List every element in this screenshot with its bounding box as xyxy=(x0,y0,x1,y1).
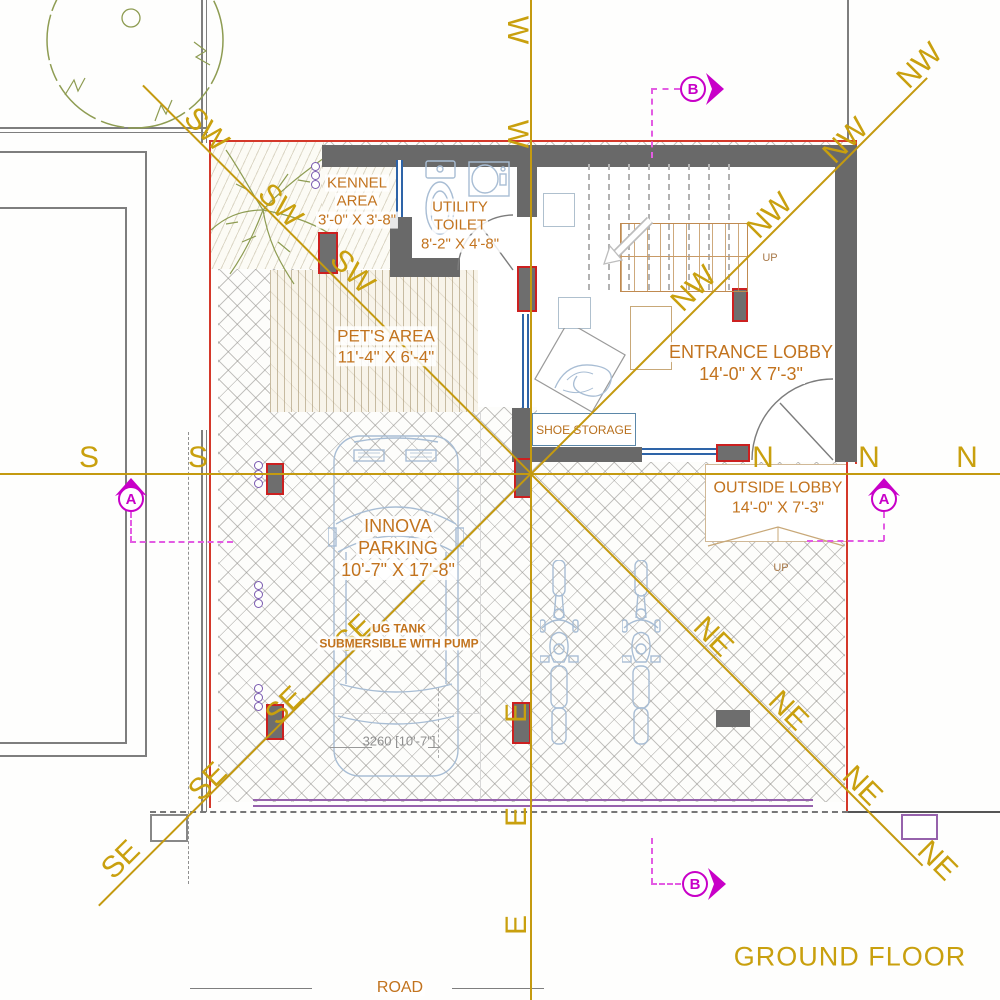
compass-axis-horizontal xyxy=(0,473,1000,475)
section-marker-b-letter: B xyxy=(690,876,701,893)
lobby-up-label: UP xyxy=(773,562,788,574)
innova-parking-name: INNOVA xyxy=(362,516,434,536)
stair-direction-arrow xyxy=(592,212,656,274)
neighbor-building-line xyxy=(0,742,126,744)
service-point xyxy=(254,693,263,702)
section-marker-a-letter: A xyxy=(879,491,890,508)
floor-plan-canvas: UP SHOE STORAGE UP xyxy=(0,0,1000,1000)
section-marker-b-letter: B xyxy=(688,81,699,98)
kennel-area-name2: AREA xyxy=(335,193,380,210)
road-label-line xyxy=(190,988,312,989)
innova-parking-label: INNOVA PARKING 10'-7" X 17'-8" xyxy=(339,516,457,582)
decor-mat xyxy=(525,328,637,416)
motorcycle xyxy=(622,560,662,746)
stair-tread-line xyxy=(588,164,590,290)
stair-up-label: UP xyxy=(762,252,777,264)
section-line-dashed xyxy=(651,883,681,885)
innova-parking-name2: PARKING xyxy=(356,538,440,558)
ug-tank-label: UG TANK SUBMERSIBLE WITH PUMP xyxy=(317,621,480,650)
compass-label-northeast: NE xyxy=(910,834,964,888)
pets-area-dims: 11'-4" X 6'-4" xyxy=(336,347,437,366)
pets-area-label: PET'S AREA 11'-4" X 6'-4" xyxy=(335,326,437,367)
sink-fixture xyxy=(468,161,510,197)
compass-label-east: E xyxy=(500,807,534,827)
compass-axis-vertical xyxy=(530,0,532,1000)
service-point xyxy=(254,599,263,608)
section-line-dashed xyxy=(130,541,233,543)
neighbor-building-line xyxy=(125,207,127,744)
utility-toilet-label: UTILITY TOILET 8'-2" X 4'-8" xyxy=(419,199,501,254)
ug-tank-name: UG TANK xyxy=(370,621,428,635)
compass-label-south: S xyxy=(79,441,99,475)
neighbor-building-line xyxy=(0,755,146,757)
column xyxy=(266,463,284,495)
window xyxy=(642,448,718,455)
motorcycle xyxy=(540,560,580,746)
road-box xyxy=(150,814,188,842)
entrance-lobby-name: ENTRANCE LOBBY xyxy=(667,342,835,362)
compass-label-east: E xyxy=(500,703,534,723)
service-point xyxy=(254,684,263,693)
road-edge-line xyxy=(253,799,813,801)
kennel-area-label: KENNEL AREA 3'-0" X 3'-8" xyxy=(316,175,398,230)
service-point xyxy=(254,590,263,599)
compass-label-south: S xyxy=(188,441,208,475)
section-marker-b: B xyxy=(682,871,708,897)
floor-title: GROUND FLOOR xyxy=(734,942,967,973)
outside-lobby-label: OUTSIDE LOBBY 14'-0" X 7'-3" xyxy=(712,478,845,517)
section-marker-a-letter: A xyxy=(126,491,137,508)
service-point xyxy=(254,479,263,488)
column xyxy=(716,444,750,462)
furniture-square xyxy=(543,193,575,227)
road-label: ROAD xyxy=(375,978,425,998)
section-line-dashed xyxy=(883,512,885,541)
neighbor-building-line xyxy=(0,207,126,209)
utility-toilet-dims: 8'-2" X 4'-8" xyxy=(419,235,501,252)
section-line-dashed xyxy=(651,838,653,884)
compass-label-west: W xyxy=(500,120,534,148)
column xyxy=(732,288,748,322)
outside-lobby-name: OUTSIDE LOBBY xyxy=(712,479,845,496)
service-point xyxy=(311,162,320,171)
kennel-area-name: KENNEL xyxy=(325,175,389,192)
ug-tank-name2: SUBMERSIBLE WITH PUMP xyxy=(317,636,480,650)
compass-label-north: N xyxy=(752,441,774,475)
road-center-dashed xyxy=(150,811,848,813)
shoe-storage-label: SHOE STORAGE xyxy=(536,423,632,437)
innova-parking-dims: 10'-7" X 17'-8" xyxy=(339,560,457,580)
utility-toilet-name: UTILITY xyxy=(430,199,490,216)
compass-label-north: N xyxy=(956,441,978,475)
pets-area-name: PET'S AREA xyxy=(335,326,437,345)
compass-label-northwest: NW xyxy=(890,36,949,95)
section-line-dashed xyxy=(651,88,653,158)
wall-segment-toilet-bottom xyxy=(390,258,460,277)
service-point xyxy=(254,461,263,470)
neighbor-building-line xyxy=(145,151,147,757)
neighbor-building-line xyxy=(206,430,207,812)
step-edge xyxy=(705,518,847,550)
paving-joint-line xyxy=(480,412,481,800)
service-point xyxy=(254,581,263,590)
entrance-lobby-dims: 14'-0" X 7'-3" xyxy=(697,364,805,384)
property-line xyxy=(846,462,848,811)
outside-lobby-dims: 14'-0" X 7'-3" xyxy=(730,499,826,516)
furniture-square xyxy=(558,297,591,329)
section-line-dashed xyxy=(130,512,132,542)
entrance-lobby-label: ENTRANCE LOBBY 14'-0" X 7'-3" xyxy=(667,342,835,386)
section-line-dashed xyxy=(651,88,680,90)
kennel-area-dims: 3'-0" X 3'-8" xyxy=(316,211,398,228)
neighbor-building-line xyxy=(0,151,146,153)
dimension-text: 3260 [10'-7"] xyxy=(363,734,436,749)
column xyxy=(517,266,537,312)
wall-segment-right xyxy=(835,167,857,462)
section-marker-b: B xyxy=(680,76,706,102)
compass-label-east: E xyxy=(500,915,534,935)
wheel-stopper xyxy=(716,710,750,727)
section-arrow-right xyxy=(707,867,727,901)
utility-toilet-name2: TOILET xyxy=(432,217,488,234)
neighbor-building-line xyxy=(201,430,203,812)
section-line-dashed xyxy=(807,540,884,542)
compass-label-north: N xyxy=(858,441,880,475)
compass-label-west: W xyxy=(500,16,534,44)
section-marker-a: A xyxy=(871,486,897,512)
section-marker-a: A xyxy=(118,486,144,512)
road-label-text: ROAD xyxy=(375,979,425,996)
compass-label-southeast: SE xyxy=(95,834,147,886)
section-arrow-right xyxy=(705,72,725,106)
wall-segment-middle-upper xyxy=(517,167,537,217)
